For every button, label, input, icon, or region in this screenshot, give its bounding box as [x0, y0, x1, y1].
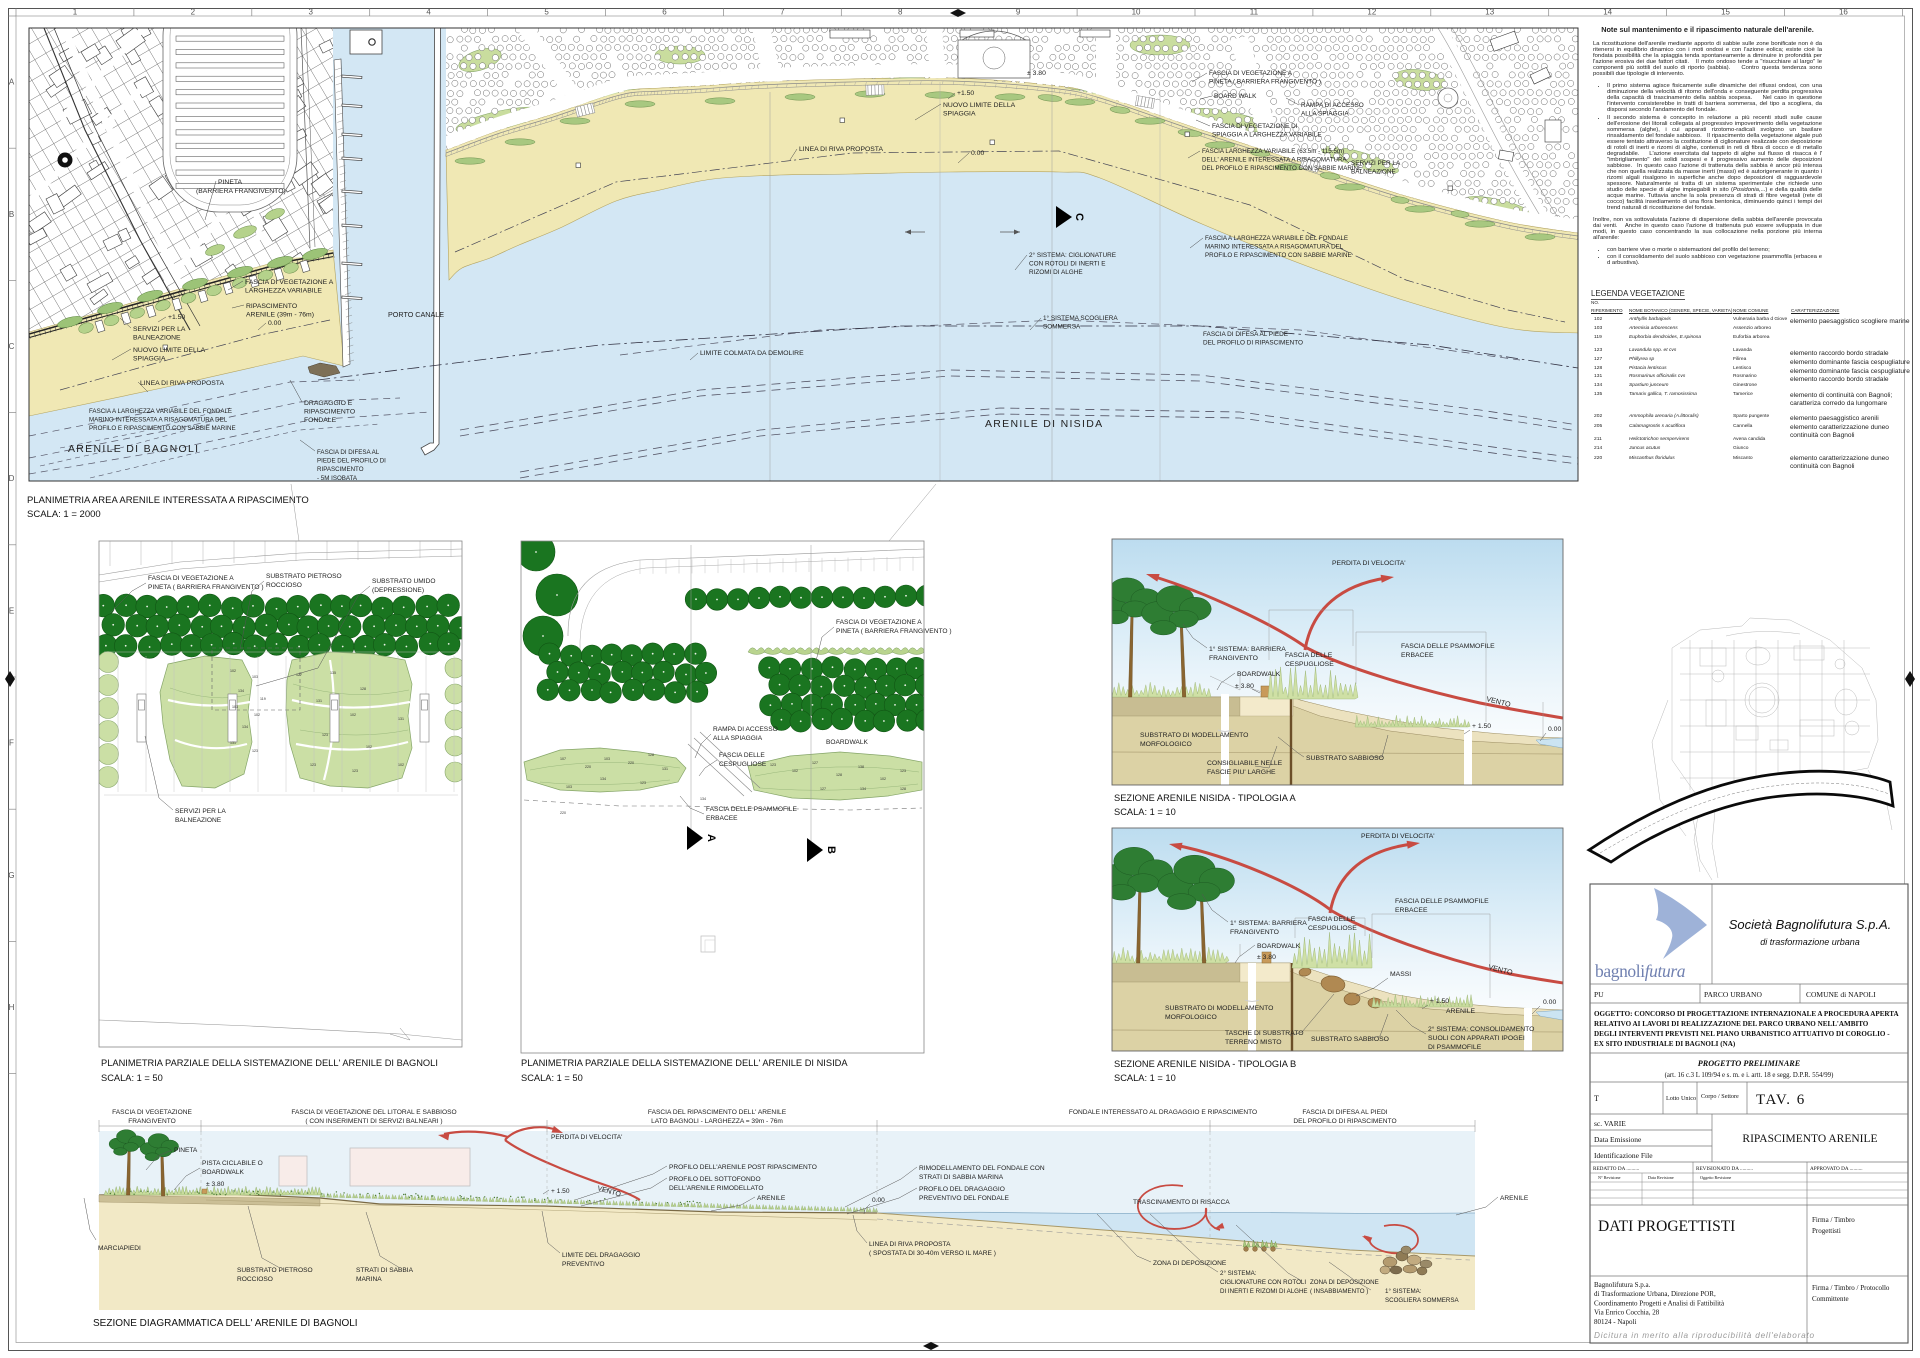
svg-text:1° SISTEMA SCOGLIERA: 1° SISTEMA SCOGLIERA [1043, 314, 1118, 322]
svg-text:Progettisti: Progettisti [1812, 1227, 1841, 1235]
svg-text:103: 103 [566, 785, 572, 789]
svg-text:0.00: 0.00 [268, 320, 281, 327]
svg-text:2° SISTEMA: CONSOLIDAMENTO: 2° SISTEMA: CONSOLIDAMENTO [1428, 1025, 1534, 1033]
svg-text:(BARRIERA FRANGIVENTO): (BARRIERA FRANGIVENTO) [196, 188, 286, 195]
svg-text:RIPASCIMENTO ARENILE: RIPASCIMENTO ARENILE [1742, 1133, 1877, 1145]
svg-text:F: F [9, 739, 14, 748]
svg-text:MORFOLOGICO: MORFOLOGICO [1140, 741, 1192, 748]
svg-text:FASCIA DI VEGETAZIONE A: FASCIA DI VEGETAZIONE A [245, 279, 334, 286]
svg-text:SPIAGGIA: SPIAGGIA [133, 356, 166, 363]
svg-text:D: D [9, 474, 15, 483]
svg-text:SERVIZI PER LA: SERVIZI PER LA [1351, 160, 1401, 167]
svg-text:ROCCIOSO: ROCCIOSO [266, 582, 302, 589]
svg-text:PLANIMETRIA AREA ARENILE INTER: PLANIMETRIA AREA ARENILE INTERESSATA A R… [27, 495, 309, 506]
svg-text:FASCIA DELLE: FASCIA DELLE [1285, 652, 1333, 659]
svg-text:PINETA ( BARRIERA FRANGIVENTO: PINETA ( BARRIERA FRANGIVENTO ) [1209, 79, 1321, 86]
svg-text:MARINA: MARINA [356, 1276, 382, 1283]
svg-text:ERBACEE: ERBACEE [706, 815, 738, 822]
svg-text:PINETA: PINETA [174, 1147, 198, 1154]
svg-text:102: 102 [254, 713, 260, 717]
svg-text:SCALA: 1 = 50: SCALA: 1 = 50 [521, 1073, 583, 1083]
svg-text:2: 2 [191, 8, 196, 17]
svg-text:0.00: 0.00 [971, 150, 984, 157]
svg-text:PERDITA DI VELOCITA': PERDITA DI VELOCITA' [551, 1134, 622, 1141]
svg-text:PERDITA DI VELOCITA': PERDITA DI VELOCITA' [1332, 560, 1406, 567]
svg-text:PROFILO DELL'ARENILE POST RIPA: PROFILO DELL'ARENILE POST RIPASCIMENTO [669, 1164, 817, 1171]
svg-text:DELL' ARENILE INTERESSATA A RI: DELL' ARENILE INTERESSATA A RISAGOMATURA [1202, 157, 1347, 164]
svg-text:MARINO INTERESSATA A RISAGOMAT: MARINO INTERESSATA A RISAGOMATURA DEL [1205, 244, 1344, 251]
svg-text:ERBACEE: ERBACEE [1401, 652, 1434, 659]
svg-text:MARINO INTERESSATA A RISAGOMAT: MARINO INTERESSATA A RISAGOMATURA DEL [89, 417, 228, 424]
svg-text:FASCIA LARGHEZZA VARIABILE (63: FASCIA LARGHEZZA VARIABILE (63.5m - 115.… [1202, 148, 1344, 155]
svg-text:TASCHE DI SUBSTRATO: TASCHE DI SUBSTRATO [1225, 1030, 1304, 1037]
svg-text:DEL PROFILO DI RIPASCIMENTO: DEL PROFILO DI RIPASCIMENTO [1203, 340, 1303, 347]
svg-text:FRANGIVENTO: FRANGIVENTO [1209, 655, 1258, 662]
svg-text:SPIAGGIA A LARGHEZZA VARIABILE: SPIAGGIA A LARGHEZZA VARIABILE [1212, 132, 1322, 139]
svg-text:SCALA: 1 = 10: SCALA: 1 = 10 [1114, 807, 1176, 817]
svg-text:( INSABBIAMENTO ): ( INSABBIAMENTO ) [1310, 1288, 1368, 1295]
svg-text:131: 131 [230, 741, 236, 745]
svg-text:134: 134 [860, 787, 866, 791]
svg-text:± 3.80: ± 3.80 [1235, 683, 1254, 690]
svg-text:BOARDWALK: BOARDWALK [1237, 671, 1281, 678]
svg-text:SUBSTRATO DI MODELLAMENTO: SUBSTRATO DI MODELLAMENTO [1165, 1005, 1273, 1012]
svg-text:ARENILE: ARENILE [757, 1195, 786, 1202]
svg-text:ALLA SPIAGGIA: ALLA SPIAGGIA [713, 735, 763, 742]
svg-text:COMUNE di NAPOLI: COMUNE di NAPOLI [1806, 990, 1876, 999]
svg-text:STRATI DI SABBIA MARINA: STRATI DI SABBIA MARINA [919, 1174, 1004, 1181]
svg-text:FASCIA A LARGHEZZA VARIABILE D: FASCIA A LARGHEZZA VARIABILE DEL FONDALE [1205, 235, 1348, 242]
svg-text:102: 102 [230, 669, 236, 673]
svg-text:Dicitura in merito alla ri: Dicitura in merito alla riproducibilità … [1594, 1331, 1815, 1340]
svg-text:102: 102 [880, 777, 886, 781]
svg-text:ALLA SPIAGGIA: ALLA SPIAGGIA [1301, 111, 1349, 118]
svg-text:( CON INSERIMENTI DI SERVIZI B: ( CON INSERIMENTI DI SERVIZI BALNEARI ) [305, 1118, 442, 1125]
svg-text:BOARDWALK: BOARDWALK [202, 1169, 244, 1176]
svg-text:FASCIA DELLE PSAMMOFILE: FASCIA DELLE PSAMMOFILE [1401, 643, 1495, 650]
svg-text:SEZIONE DIAGRAMMATICA DELL' AR: SEZIONE DIAGRAMMATICA DELL' ARENILE DI B… [93, 1318, 358, 1329]
svg-text:REVISIONATO DA ..........: REVISIONATO DA .......... [1696, 1166, 1753, 1172]
svg-text:9: 9 [1016, 8, 1021, 17]
svg-text:FASCIA DI VEGETAZIONE DI: FASCIA DI VEGETAZIONE DI [1212, 123, 1298, 130]
svg-text:REDATTO DA ..........: REDATTO DA .......... [1593, 1166, 1639, 1172]
svg-text:FASCIA DELLE: FASCIA DELLE [719, 752, 765, 759]
svg-text:PINETA ( BARRIERA FRANGIVENTO: PINETA ( BARRIERA FRANGIVENTO ) [148, 584, 264, 591]
svg-text:EX SITO INDUSTRIALE DI BAGNOLI: EX SITO INDUSTRIALE DI BAGNOLI (NA) [1594, 1040, 1736, 1048]
svg-text:di Trasformazione Urbana, Dire: di Trasformazione Urbana, Direzione POR, [1594, 1290, 1716, 1298]
svg-text:13: 13 [1485, 8, 1494, 17]
svg-text:Data Emissione: Data Emissione [1594, 1135, 1642, 1144]
svg-text:102: 102 [398, 763, 404, 767]
svg-text:RIZOMI DI ALGHE: RIZOMI DI ALGHE [1029, 269, 1083, 276]
svg-text:Coordinamento Progetti e Anali: Coordinamento Progetti e Analisi di Fatt… [1594, 1299, 1725, 1307]
svg-text:131: 131 [316, 699, 322, 703]
svg-text:PERDITA DI VELOCITA': PERDITA DI VELOCITA' [1361, 833, 1435, 840]
svg-text:FASCIA A LARGHEZZA VARIABILE D: FASCIA A LARGHEZZA VARIABILE DEL FONDALE [89, 408, 232, 415]
svg-text:FASCIA DELLE PSAMMOFILE: FASCIA DELLE PSAMMOFILE [1395, 898, 1489, 905]
svg-text:FASCIE PIU' LARGHE: FASCIE PIU' LARGHE [1207, 769, 1276, 776]
svg-text:PREVENTIVO: PREVENTIVO [562, 1261, 605, 1268]
svg-text:STRATI DI SABBIA: STRATI DI SABBIA [356, 1267, 414, 1274]
svg-text:di trasformazione urbana: di trasformazione urbana [1760, 937, 1860, 947]
svg-text:PINETA ( BARRIERA FRANGIVENTO: PINETA ( BARRIERA FRANGIVENTO ) [836, 628, 952, 635]
svg-text:DRAGAGGIO E: DRAGAGGIO E [304, 400, 353, 407]
svg-text:RIMODELLAMENTO DEL FONDALE CON: RIMODELLAMENTO DEL FONDALE CON [919, 1165, 1045, 1172]
svg-text:123: 123 [310, 763, 316, 767]
svg-text:DEL PROFILO E RIPASCIMENTO CON: DEL PROFILO E RIPASCIMENTO CON SABBIE MA… [1202, 165, 1362, 172]
svg-text:102: 102 [792, 769, 798, 773]
svg-text:BOARDWALK: BOARDWALK [826, 739, 868, 746]
svg-text:RAMPA DI ACCESSO: RAMPA DI ACCESSO [713, 726, 778, 733]
svg-text:FASCIA DI DIFESA AL: FASCIA DI DIFESA AL [317, 449, 380, 456]
svg-text:220: 220 [585, 765, 591, 769]
svg-text:LIMITE DEL DRAGAGGIO: LIMITE DEL DRAGAGGIO [562, 1252, 640, 1259]
svg-text:RELATIVO AI LAVORI DI REALIZZA: RELATIVO AI LAVORI DI REALIZZAZIONE DEL … [1594, 1020, 1869, 1028]
svg-text:FASCIA DI VEGETAZIONE: FASCIA DI VEGETAZIONE [112, 1109, 192, 1116]
svg-text:5: 5 [544, 8, 549, 17]
svg-text:+ 1.50: + 1.50 [1472, 723, 1491, 730]
svg-text:FASCIA DELLE PSAMMOFILE: FASCIA DELLE PSAMMOFILE [706, 806, 797, 813]
svg-text:ARENILE: ARENILE [1446, 1008, 1476, 1015]
svg-text:123: 123 [640, 781, 646, 785]
svg-text:NUOVO LIMITE DELLA: NUOVO LIMITE DELLA [133, 347, 206, 354]
svg-text:PINETA: PINETA [218, 179, 243, 186]
svg-text:(DEPRESSIONE): (DEPRESSIONE) [372, 587, 424, 594]
svg-text:DEGLI INTERVENTI PREVISTI NEL: DEGLI INTERVENTI PREVISTI NEL PIANO URBA… [1594, 1030, 1890, 1038]
svg-text:sc. VARIE: sc. VARIE [1594, 1119, 1626, 1128]
svg-text:ARENILE (39m - 76m): ARENILE (39m - 76m) [246, 312, 314, 319]
svg-text:PLANIMETRIA PARZIALE DELLA SIS: PLANIMETRIA PARZIALE DELLA SISTEMAZIONE … [521, 1058, 848, 1068]
svg-text:(art. 16 c.3 L 109/94 e s. m.: (art. 16 c.3 L 109/94 e s. m. e i. artt.… [1665, 1072, 1834, 1079]
svg-text:123: 123 [252, 749, 258, 753]
svg-text:H: H [9, 1003, 15, 1012]
svg-text:FASCIA DI VEGETAZIONE A: FASCIA DI VEGETAZIONE A [1209, 70, 1293, 77]
svg-text:B: B [825, 846, 837, 854]
svg-text:103: 103 [232, 705, 238, 709]
svg-text:FASCIA DELLE: FASCIA DELLE [1308, 916, 1356, 923]
svg-text:SERVIZI PER LA: SERVIZI PER LA [133, 326, 186, 333]
svg-text:123: 123 [770, 763, 776, 767]
svg-text:Data Revisione: Data Revisione [1648, 1175, 1674, 1180]
svg-text:BALNEAZIONE: BALNEAZIONE [1351, 169, 1396, 176]
svg-text:CESPUGLIOSE: CESPUGLIOSE [719, 761, 767, 768]
svg-text:Via Enrico Cocchia, 28: Via Enrico Cocchia, 28 [1594, 1309, 1660, 1317]
svg-text:OGGETTO: CONCORSO DI PROGETTAZ: OGGETTO: CONCORSO DI PROGETTAZIONE INTER… [1594, 1010, 1900, 1018]
svg-text:103: 103 [604, 757, 610, 761]
svg-text:+1.50: +1.50 [168, 314, 185, 321]
svg-text:FRANGIVENTO: FRANGIVENTO [1230, 929, 1279, 936]
svg-text:A: A [9, 78, 15, 87]
svg-text:Firma / Timbro / Protocollo: Firma / Timbro / Protocollo [1812, 1284, 1890, 1292]
svg-text:± 3.80: ± 3.80 [1257, 954, 1276, 961]
svg-text:FASCIA DEL RIPASCIMENTO DELL': FASCIA DEL RIPASCIMENTO DELL' ARENILE [648, 1109, 787, 1116]
svg-text:220: 220 [560, 811, 566, 815]
svg-text:SUOLI CON APPARATI IPOGEI: SUOLI CON APPARATI IPOGEI [1428, 1035, 1525, 1042]
svg-text:134: 134 [600, 777, 606, 781]
svg-text:FONDALE: FONDALE [304, 417, 337, 424]
svg-text:127: 127 [820, 787, 826, 791]
svg-text:LINEA DI RIVA PROPOSTA: LINEA DI RIVA PROPOSTA [140, 380, 224, 387]
svg-text:FONDALE INTERESSATO AL DRAGAGG: FONDALE INTERESSATO AL DRAGAGGIO E RIPAS… [1069, 1109, 1257, 1116]
svg-text:127: 127 [812, 761, 818, 765]
svg-text:MASSI: MASSI [1390, 971, 1411, 978]
svg-text:107: 107 [560, 757, 566, 761]
svg-text:128: 128 [900, 787, 906, 791]
svg-text:DATI PROGETTISTI: DATI PROGETTISTI [1598, 1218, 1735, 1235]
svg-text:T: T [1594, 1094, 1599, 1103]
svg-text:PROGETTO PRELIMINARE: PROGETTO PRELIMINARE [1698, 1059, 1801, 1068]
svg-text:+1.50: +1.50 [957, 90, 974, 97]
svg-text:LINEA DI RIVA PROPOSTA: LINEA DI RIVA PROPOSTA [869, 1241, 951, 1248]
svg-text:102: 102 [366, 745, 372, 749]
svg-text:SUBSTRATO SABBIOSO: SUBSTRATO SABBIOSO [1311, 1036, 1389, 1043]
svg-text:ARENILE: ARENILE [1500, 1195, 1529, 1202]
svg-text:134: 134 [238, 689, 244, 693]
svg-text:DEL PROFILO DI RIPASCIMENTO: DEL PROFILO DI RIPASCIMENTO [1293, 1118, 1396, 1125]
svg-text:PROFILO DEL DRAGAGGIO: PROFILO DEL DRAGAGGIO [919, 1186, 1005, 1193]
svg-text:220: 220 [628, 761, 634, 765]
svg-text:ROCCIOSO: ROCCIOSO [237, 1276, 273, 1283]
svg-text:7: 7 [780, 8, 785, 17]
svg-text:134: 134 [700, 797, 706, 801]
svg-text:2° SISTEMA: CIGLIONATURE: 2° SISTEMA: CIGLIONATURE [1029, 251, 1116, 259]
svg-text:bagnolifutura: bagnolifutura [1595, 961, 1686, 981]
svg-text:PORTO CANALE: PORTO CANALE [388, 310, 444, 319]
svg-text:SCALA: 1 = 50: SCALA: 1 = 50 [101, 1073, 163, 1083]
svg-text:± 3.80: ± 3.80 [1027, 70, 1046, 77]
svg-text:FASCIA DI DIFESA AL PIEDI: FASCIA DI DIFESA AL PIEDI [1302, 1109, 1387, 1116]
svg-text:10: 10 [1132, 8, 1141, 17]
svg-text:DI INERTI E RIZOMI DI ALGHE: DI INERTI E RIZOMI DI ALGHE [1220, 1288, 1308, 1295]
svg-text:CESPUGLIOSE: CESPUGLIOSE [1285, 661, 1334, 668]
svg-text:APPROVATO DA ..........: APPROVATO DA .......... [1810, 1166, 1863, 1172]
svg-text:SEZIONE ARENILE NISIDA - TIPOL: SEZIONE ARENILE NISIDA - TIPOLOGIA A [1114, 793, 1296, 803]
svg-text:14: 14 [1603, 8, 1612, 17]
svg-text:PISTA CICLABILE O: PISTA CICLABILE O [202, 1160, 263, 1167]
svg-text:Società Bagnolifutura S.p.A.: Società Bagnolifutura S.p.A. [1729, 917, 1892, 932]
svg-text:DELL'ARENILE RIMODELLATO: DELL'ARENILE RIMODELLATO [669, 1185, 763, 1192]
svg-text:134: 134 [242, 725, 248, 729]
svg-text:0.00: 0.00 [1548, 726, 1561, 733]
svg-text:SUBSTRATO UMIDO: SUBSTRATO UMIDO [372, 578, 436, 585]
svg-text:103: 103 [252, 675, 258, 679]
svg-text:E: E [9, 606, 14, 615]
svg-text:138: 138 [858, 765, 864, 769]
svg-text:PLANIMETRIA PARZIALE DELLA SIS: PLANIMETRIA PARZIALE DELLA SISTEMAZIONE … [101, 1058, 438, 1068]
svg-text:ARENILE DI NISIDA: ARENILE DI NISIDA [985, 418, 1103, 430]
svg-text:Firma / Timbro: Firma / Timbro [1812, 1216, 1855, 1224]
svg-text:ZONA DI DEPOSIZIONE: ZONA DI DEPOSIZIONE [1153, 1260, 1227, 1267]
svg-text:SUBSTRATO SABBIOSO: SUBSTRATO SABBIOSO [1306, 755, 1384, 762]
svg-text:BALNEAZIONE: BALNEAZIONE [175, 817, 222, 824]
svg-text:SCALA: 1 = 2000: SCALA: 1 = 2000 [27, 509, 101, 520]
svg-text:ARENILE DI BAGNOLI: ARENILE DI BAGNOLI [68, 443, 199, 455]
svg-text:1° SISTEMA: BARRIERA: 1° SISTEMA: BARRIERA [1230, 919, 1307, 927]
svg-text:PARCO URBANO: PARCO URBANO [1704, 990, 1762, 999]
svg-text:LATO BAGNOLI - LARGHEZZA = 39: LATO BAGNOLI - LARGHEZZA = 39m - 76m [651, 1118, 783, 1125]
svg-text:MARCIAPIEDI: MARCIAPIEDI [98, 1245, 141, 1252]
svg-text:NUOVO LIMITE DELLA: NUOVO LIMITE DELLA [943, 102, 1016, 109]
svg-text:Oggetto Revisione: Oggetto Revisione [1700, 1175, 1731, 1180]
svg-text:Lotto Unico: Lotto Unico [1666, 1095, 1696, 1102]
svg-text:N° Revisione: N° Revisione [1598, 1175, 1621, 1180]
svg-text:FASCIA DI VEGETAZIONE A: FASCIA DI VEGETAZIONE A [836, 619, 922, 626]
svg-text:BALNEAZIONE: BALNEAZIONE [133, 335, 181, 342]
svg-text:SCOGLIERA SOMMERSA: SCOGLIERA SOMMERSA [1385, 1297, 1459, 1304]
svg-text:Committente: Committente [1812, 1295, 1849, 1303]
svg-text:LARGHEZZA VARIABILE: LARGHEZZA VARIABILE [245, 288, 322, 295]
svg-text:ERBACEE: ERBACEE [1395, 907, 1428, 914]
svg-text:SOMMERSA: SOMMERSA [1043, 324, 1081, 331]
svg-text:SUBSTRATO PIETROSO: SUBSTRATO PIETROSO [237, 1267, 313, 1274]
svg-text:8: 8 [898, 8, 903, 17]
svg-text:DI PSAMMOFILE: DI PSAMMOFILE [1428, 1044, 1482, 1051]
svg-text:Bagnolifutura S.p.a.: Bagnolifutura S.p.a. [1594, 1281, 1651, 1289]
svg-text:119: 119 [260, 697, 266, 701]
svg-text:128: 128 [360, 687, 366, 691]
svg-text:RIPASCIMENTO: RIPASCIMENTO [246, 303, 297, 310]
svg-text:PROFILO E RIPASCIMENTO CON SAB: PROFILO E RIPASCIMENTO CON SABBIE MARINE [89, 425, 236, 432]
svg-text:SERVIZI PER LA: SERVIZI PER LA [175, 808, 226, 815]
svg-text:G: G [8, 871, 14, 880]
svg-text:MORFOLOGICO: MORFOLOGICO [1165, 1014, 1217, 1021]
svg-text:FRANGIVENTO: FRANGIVENTO [128, 1118, 176, 1125]
svg-text:3: 3 [309, 8, 314, 17]
svg-text:C: C [9, 342, 15, 351]
svg-text:131: 131 [398, 717, 404, 721]
svg-text:CESPUGLIOSE: CESPUGLIOSE [1308, 925, 1357, 932]
svg-text:131: 131 [662, 767, 668, 771]
svg-text:2° SISTEMA:: 2° SISTEMA: [1220, 1270, 1257, 1277]
svg-text:1: 1 [73, 8, 78, 17]
svg-text:FASCIA DI VEGETAZIONE A: FASCIA DI VEGETAZIONE A [148, 575, 234, 582]
svg-text:6: 6 [662, 8, 667, 17]
svg-text:A: A [705, 834, 717, 842]
svg-text:80124 - Napoli: 80124 - Napoli [1594, 1318, 1636, 1326]
svg-text:4: 4 [426, 8, 431, 17]
svg-text:FASCIA DI DIFESA AL PIEDE: FASCIA DI DIFESA AL PIEDE [1203, 331, 1288, 338]
svg-text:PIEDE DEL PROFILO DI: PIEDE DEL PROFILO DI [317, 458, 386, 465]
svg-text:16: 16 [1839, 8, 1848, 17]
svg-text:BOARD WALK: BOARD WALK [1214, 93, 1257, 100]
svg-text:102: 102 [350, 713, 356, 717]
svg-text:Identificazione File: Identificazione File [1594, 1151, 1653, 1160]
svg-text:128: 128 [648, 753, 654, 757]
svg-text:135: 135 [330, 671, 336, 675]
svg-text:- 5M ISOBATA: - 5M ISOBATA [317, 475, 358, 482]
svg-text:± 3.80: ± 3.80 [206, 1181, 225, 1188]
svg-text:PROFILO E RIPASCIMENTO CON SAB: PROFILO E RIPASCIMENTO CON SABBIE MARINE [1205, 252, 1352, 259]
svg-text:+ 1.50: + 1.50 [551, 1188, 570, 1195]
svg-text:C: C [1073, 213, 1085, 221]
svg-text:Corpo / Settore: Corpo / Settore [1701, 1093, 1739, 1100]
svg-text:+ 1.50: + 1.50 [1430, 998, 1449, 1005]
svg-text:1° SISTEMA: BARRIERA: 1° SISTEMA: BARRIERA [1209, 645, 1286, 653]
svg-text:123: 123 [900, 769, 906, 773]
svg-text:TRASCINAMENTO DI RISACCA: TRASCINAMENTO DI RISACCA [1133, 1199, 1230, 1206]
svg-text:123: 123 [352, 769, 358, 773]
svg-text:SPIAGGIA: SPIAGGIA [943, 111, 976, 118]
svg-text:TERRENO MISTO: TERRENO MISTO [1225, 1039, 1282, 1046]
svg-text:RIPASCIMENTO: RIPASCIMENTO [317, 466, 364, 473]
svg-text:1° SISTEMA:: 1° SISTEMA: [1385, 1288, 1422, 1295]
svg-text:PROFILO DEL SOTTOFONDO: PROFILO DEL SOTTOFONDO [669, 1176, 761, 1183]
svg-text:0.00: 0.00 [1543, 999, 1556, 1006]
svg-text:15: 15 [1721, 8, 1730, 17]
svg-text:12: 12 [1367, 8, 1376, 17]
svg-text:B: B [9, 210, 14, 219]
svg-text:SCALA: 1 = 10: SCALA: 1 = 10 [1114, 1073, 1176, 1083]
svg-text:PREVENTIVO DEL FONDALE: PREVENTIVO DEL FONDALE [919, 1195, 1009, 1202]
svg-text:SEZIONE ARENILE NISIDA - TIPOL: SEZIONE ARENILE NISIDA - TIPOLOGIA B [1114, 1059, 1296, 1069]
svg-text:BOARDWALK: BOARDWALK [1257, 943, 1301, 950]
svg-text:CON ROTOLI DI INERTI E: CON ROTOLI DI INERTI E [1029, 261, 1105, 268]
svg-text:ZONA DI DEPOSIZIONE: ZONA DI DEPOSIZIONE [1310, 1279, 1379, 1286]
svg-text:RIPASCIMENTO: RIPASCIMENTO [304, 409, 355, 416]
svg-text:SUBSTRATO PIETROSO: SUBSTRATO PIETROSO [266, 573, 342, 580]
svg-text:PU: PU [1594, 990, 1604, 999]
svg-text:LINEA DI RIVA PROPOSTA: LINEA DI RIVA PROPOSTA [799, 146, 883, 153]
svg-text:11: 11 [1250, 8, 1259, 17]
svg-text:RAMPA DI ACCESSO: RAMPA DI ACCESSO [1301, 102, 1364, 109]
svg-text:LIMITE COLMATA DA DEMOLIRE: LIMITE COLMATA DA DEMOLIRE [700, 350, 804, 357]
svg-text:FASCIA DI VEGETAZIONE DEL LITO: FASCIA DI VEGETAZIONE DEL LITORAL E SABB… [291, 1109, 456, 1116]
svg-text:CIGLIONATURE CON ROTOLI: CIGLIONATURE CON ROTOLI [1220, 1279, 1306, 1286]
svg-text:( SPOSTATA DI 30-40m VERSO IL: ( SPOSTATA DI 30-40m VERSO IL MARE ) [869, 1250, 996, 1257]
svg-text:123: 123 [322, 733, 328, 737]
svg-text:128: 128 [836, 773, 842, 777]
svg-text:TAV. 6: TAV. 6 [1756, 1092, 1806, 1108]
svg-text:SUBSTRATO DI MODELLAMENTO: SUBSTRATO DI MODELLAMENTO [1140, 732, 1248, 739]
